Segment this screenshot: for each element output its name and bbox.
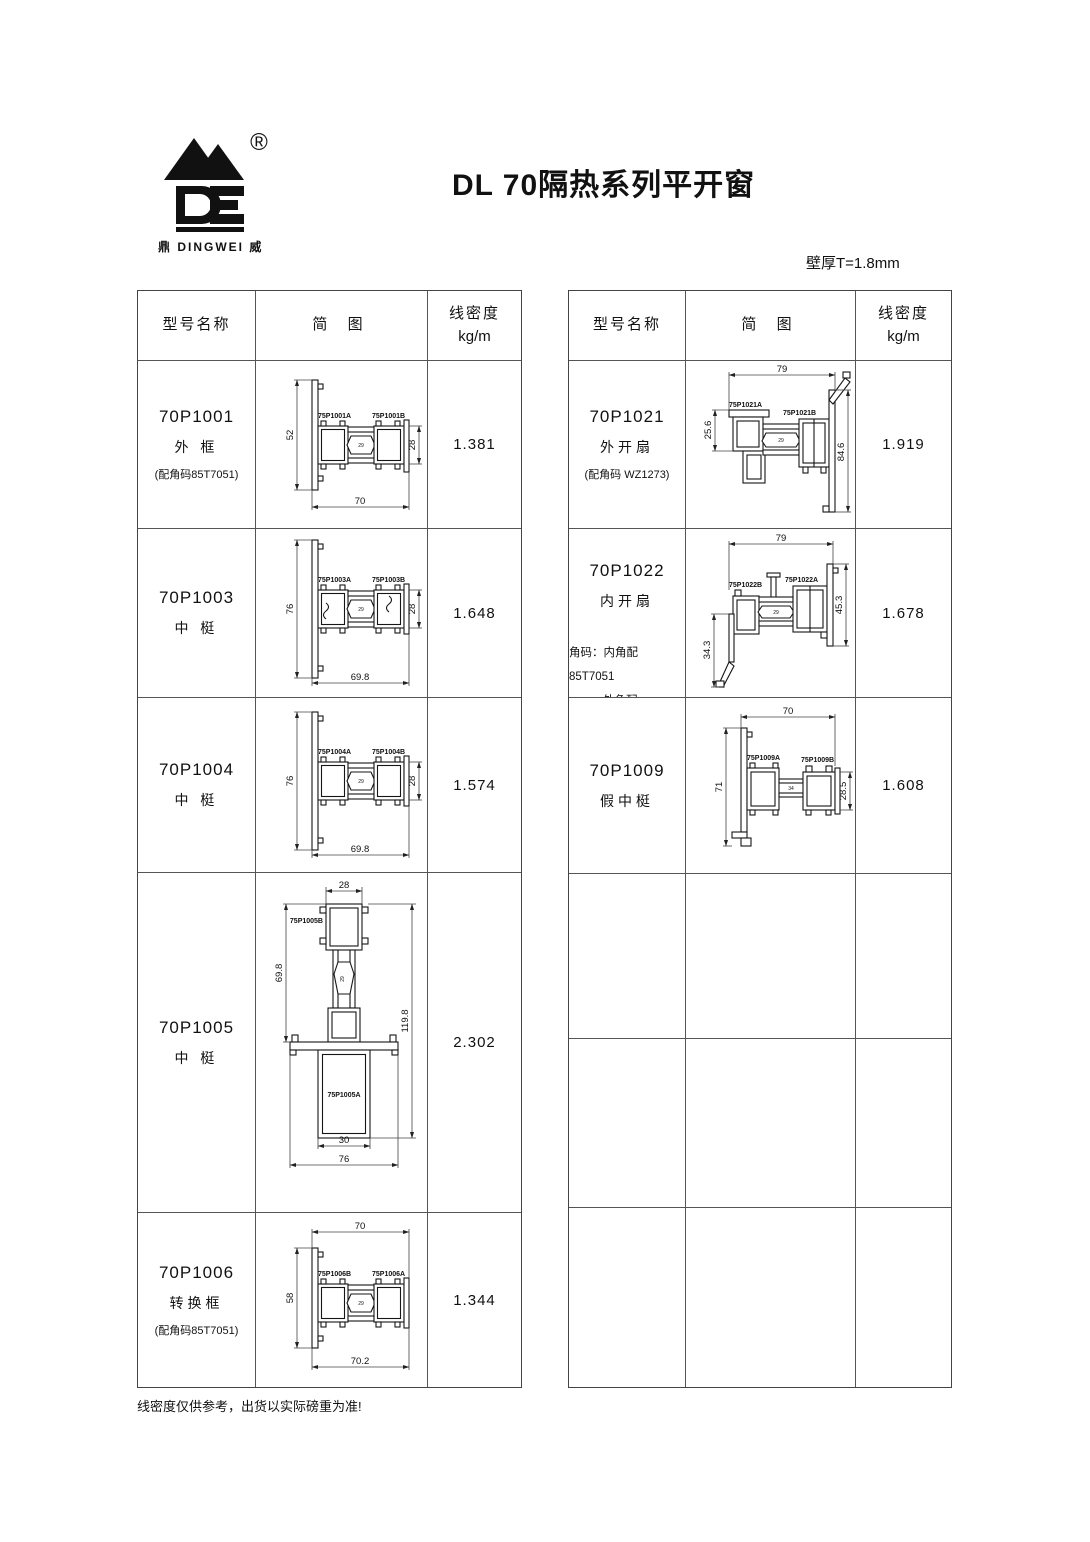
dim-bottom: 69.8 — [350, 844, 369, 855]
profile-label-left: 75P1001A — [318, 413, 351, 420]
header-model-label: 型号名称 — [593, 314, 661, 337]
dim-left: 25.6 — [703, 420, 714, 439]
left-header-model: 型号名称 — [138, 291, 256, 361]
profile-outline — [290, 904, 398, 1138]
registered-mark: ® — [250, 129, 268, 156]
profile-label-right: 75P1003B — [372, 577, 405, 584]
row-70P1022-density-cell: 1.678 — [856, 529, 951, 698]
logo-caption: 鼎 DINGWEI 威 — [158, 238, 298, 255]
profile-label-right: 75P1021B — [783, 410, 816, 417]
dim-left: 52 — [285, 429, 296, 440]
empty-diagram-cell — [686, 1039, 856, 1208]
right-header-diagram: 简 图 — [686, 291, 856, 361]
brand-logo-mark: ® — [158, 126, 278, 232]
left-profile-table: 型号名称 简 图 线密度 kg/m 70P1001 外 框 (配角码85T705… — [137, 290, 522, 1388]
model-name: 中 梃 — [175, 1048, 219, 1068]
dim-top: 79 — [775, 533, 786, 544]
row-70P1005-density-cell: 2.302 — [428, 873, 521, 1213]
row-70P1006-diagram-cell: 70 58 70.2 29 75P1006B 75P1006A — [256, 1213, 428, 1387]
page-title: DL 70隔热系列平开窗 — [452, 160, 755, 204]
empty-model-cell — [569, 874, 686, 1039]
row-70P1003-diagram-cell: 76 28 69.8 29 75P1003A 75P1003B — [256, 529, 428, 698]
model-name: 转换框 — [170, 1293, 224, 1313]
profile-label-left: 75P1004A — [318, 749, 351, 756]
model-note: (配角码 WZ1273) — [585, 466, 670, 482]
dim-core: 29 — [358, 1301, 364, 1307]
dim-core: 34 — [788, 786, 794, 792]
dim-core: 29 — [358, 607, 364, 613]
empty-diagram-cell — [686, 874, 856, 1039]
row-70P1004-model-cell: 70P1004 中 梃 — [138, 698, 256, 873]
empty-density-cell — [856, 1039, 951, 1208]
dim-bottom: 69.8 — [350, 672, 369, 683]
profile-outline — [312, 1248, 409, 1348]
row-70P1005-model-cell: 70P1005 中 梃 — [138, 873, 256, 1213]
row-70P1003-model-cell: 70P1003 中 梃 — [138, 529, 256, 698]
dim-top: 70 — [354, 1221, 365, 1232]
header-density-unit: kg/m — [458, 326, 491, 349]
profile-label-left: 75P1006B — [318, 1271, 351, 1278]
right-header-density: 线密度 kg/m — [856, 291, 951, 361]
logo-letter-e-bar — [210, 200, 238, 210]
model-name: 中 梃 — [175, 618, 219, 638]
profile-label-right: 75P1022A — [785, 577, 818, 584]
dim-bottom: 70 — [354, 496, 365, 507]
profile-label-right: 75P1009B — [801, 757, 834, 764]
density-value: 1.344 — [453, 1292, 496, 1309]
row-70P1005-diagram-cell: 28 69.8 119.8 30 76 29 75P1005B 75P1005A — [256, 873, 428, 1213]
row-70P1001-diagram-cell: 52 28 70 29 75P1001A 75P1001B — [256, 361, 428, 529]
diagram-70P1001: 52 28 70 29 75P1001A 75P1001B — [256, 366, 428, 524]
profile-label-top: 75P1005B — [289, 918, 322, 925]
model-name: 外开扇 — [600, 437, 654, 457]
model-number: 70P1021 — [589, 407, 664, 427]
diagram-70P1009: 70 71 28.5 34 75P1009A 75P1009B — [686, 706, 856, 866]
model-name: 中 梃 — [175, 790, 219, 810]
density-value: 1.574 — [453, 777, 496, 794]
row-70P1021-diagram-cell: 79 25.6 84.6 29 75P1021A 75P1021B — [686, 361, 856, 529]
profile-label-left: 75P1009A — [747, 755, 780, 762]
row-70P1006-density-cell: 1.344 — [428, 1213, 521, 1387]
model-note: (配角码85T7051) — [155, 1322, 239, 1338]
header-density-label: 线密度 — [878, 303, 929, 326]
header-diagram-label: 简 图 — [312, 314, 370, 337]
header-diagram-label: 简 图 — [741, 314, 799, 337]
model-number: 70P1005 — [159, 1018, 234, 1038]
dim-top: 79 — [776, 364, 787, 375]
diagram-70P1003: 76 28 69.8 29 75P1003A 75P1003B — [256, 532, 428, 694]
diagram-70P1006: 70 58 70.2 29 75P1006B 75P1006A — [256, 1220, 428, 1380]
dim-bottom-inner: 30 — [338, 1135, 349, 1146]
left-header-diagram: 简 图 — [256, 291, 428, 361]
empty-model-cell — [569, 1208, 686, 1387]
dim-bottom-outer: 76 — [338, 1154, 349, 1165]
profile-outline — [732, 728, 840, 846]
row-70P1001-model-cell: 70P1001 外 框 (配角码85T7051) — [138, 361, 256, 529]
diagram-70P1005: 28 69.8 119.8 30 76 29 75P1005B 75P1005A — [256, 878, 428, 1208]
profile-outline — [729, 372, 850, 512]
dim-left: 34.3 — [702, 641, 713, 660]
row-70P1004-diagram-cell: 76 28 69.8 29 75P1004A 75P1004B — [256, 698, 428, 873]
profile-label-left: 75P1022B — [729, 582, 762, 589]
profile-label-right: 75P1004B — [372, 749, 405, 756]
dim-right: 119.8 — [400, 1009, 411, 1032]
model-name: 内开扇 — [600, 591, 654, 611]
density-value: 2.302 — [453, 1034, 496, 1051]
dim-top: 70 — [782, 706, 793, 717]
model-note: 角码：内角配 85T7051 外角配 YS00120 — [569, 641, 685, 698]
row-70P1006-model-cell: 70P1006 转换框 (配角码85T7051) — [138, 1213, 256, 1387]
logo-letter-e-bar — [210, 214, 244, 224]
row-70P1021-density-cell: 1.919 — [856, 361, 951, 529]
profile-outline — [312, 380, 409, 490]
row-70P1009-model-cell: 70P1009 假中梃 — [569, 698, 686, 874]
density-value: 1.381 — [453, 436, 496, 453]
header-density-label: 线密度 — [449, 303, 500, 326]
header-model-label: 型号名称 — [162, 314, 230, 337]
profile-label-right: 75P1001B — [372, 413, 405, 420]
model-number: 70P1009 — [589, 761, 664, 781]
dim-core: 29 — [358, 443, 364, 449]
row-70P1004-density-cell: 1.574 — [428, 698, 521, 873]
row-70P1009-diagram-cell: 70 71 28.5 34 75P1009A 75P1009B — [686, 698, 856, 874]
density-value: 1.648 — [453, 605, 496, 622]
model-number: 70P1004 — [159, 760, 234, 780]
density-value: 1.608 — [882, 777, 925, 794]
model-number: 70P1001 — [159, 407, 234, 427]
model-number: 70P1003 — [159, 588, 234, 608]
diagram-70P1004: 76 28 69.8 29 75P1004A 75P1004B — [256, 704, 428, 866]
note-line-2: 外角配 YS00120 — [569, 689, 685, 698]
dim-left: 69.8 — [274, 963, 285, 982]
dim-top: 28 — [338, 880, 349, 891]
model-name: 假中梃 — [600, 791, 654, 811]
footer-note: 线密度仅供参考，出货以实际磅重为准! — [137, 1396, 362, 1415]
density-value: 1.919 — [882, 436, 925, 453]
profile-label-left: 75P1021A — [729, 402, 762, 409]
catalog-page: ® 鼎 DINGWEI 威 DL 70隔热系列平开窗 壁厚T=1.8mm 型号名… — [0, 0, 1090, 1542]
dim-left: 76 — [285, 776, 296, 787]
row-70P1003-density-cell: 1.648 — [428, 529, 521, 698]
brand-logo: ® 鼎 DINGWEI 威 — [158, 126, 298, 255]
dim-core: 29 — [773, 610, 779, 616]
empty-density-cell — [856, 874, 951, 1039]
model-name: 外 框 — [175, 437, 219, 457]
row-70P1022-model-cell: 70P1022 内开扇 角码：内角配 85T7051 外角配 YS00120 — [569, 529, 686, 698]
dim-right: 28 — [407, 604, 418, 615]
dim-bottom: 70.2 — [350, 1356, 369, 1367]
profile-label-left: 75P1003A — [318, 577, 351, 584]
dim-right: 28 — [407, 776, 418, 787]
dim-left: 58 — [285, 1293, 296, 1304]
dim-right: 45.3 — [834, 596, 845, 615]
profile-label-right: 75P1006A — [372, 1271, 405, 1278]
wall-thickness-note: 壁厚T=1.8mm — [806, 252, 900, 273]
dim-core: 29 — [358, 779, 364, 785]
empty-density-cell — [856, 1208, 951, 1387]
dim-left: 76 — [285, 604, 296, 615]
model-note: (配角码85T7051) — [155, 466, 239, 482]
logo-underline — [176, 227, 244, 232]
model-number: 70P1006 — [159, 1263, 234, 1283]
logo-letter-e-bar — [210, 186, 244, 196]
right-header-model: 型号名称 — [569, 291, 686, 361]
density-value: 1.678 — [882, 605, 925, 622]
dim-right: 84.6 — [836, 442, 847, 461]
empty-diagram-cell — [686, 1208, 856, 1387]
right-profile-table: 型号名称 简 图 线密度 kg/m 70P1021 外开扇 (配角码 WZ127… — [568, 290, 952, 1388]
dim-right: 28.5 — [838, 781, 849, 800]
dim-right: 28 — [407, 439, 418, 450]
empty-model-cell — [569, 1039, 686, 1208]
diagram-70P1022: 79 45.3 34.3 29 75P1022B 75P1022A — [686, 530, 856, 696]
row-70P1001-density-cell: 1.381 — [428, 361, 521, 529]
model-number: 70P1022 — [589, 561, 664, 581]
dim-core: 29 — [340, 976, 346, 982]
header-density-unit: kg/m — [887, 326, 920, 349]
dim-left: 71 — [714, 781, 725, 792]
diagram-70P1021: 79 25.6 84.6 29 75P1021A 75P1021B — [686, 362, 856, 528]
dim-core: 29 — [778, 438, 784, 444]
note-line-1: 角码：内角配 85T7051 — [569, 641, 685, 689]
row-70P1021-model-cell: 70P1021 外开扇 (配角码 WZ1273) — [569, 361, 686, 529]
row-70P1009-density-cell: 1.608 — [856, 698, 951, 874]
profile-label-bottom: 75P1005A — [327, 1092, 360, 1099]
left-header-density: 线密度 kg/m — [428, 291, 521, 361]
row-70P1022-diagram-cell: 79 45.3 34.3 29 75P1022B 75P1022A — [686, 529, 856, 698]
